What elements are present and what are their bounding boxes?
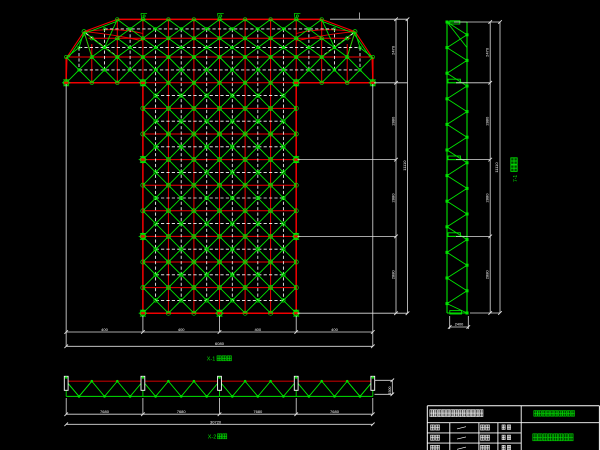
svg-text:2880: 2880 xyxy=(391,116,396,126)
svg-text:2880: 2880 xyxy=(485,270,490,280)
svg-text:400: 400 xyxy=(101,327,108,332)
svg-text:7680: 7680 xyxy=(100,409,110,414)
svg-text:X-1: X-1 xyxy=(207,357,216,363)
svg-text:400: 400 xyxy=(331,327,338,332)
svg-text:7680: 7680 xyxy=(330,409,340,414)
svg-text:400: 400 xyxy=(178,327,185,332)
svg-text:1500: 1500 xyxy=(388,387,392,395)
svg-text:11110: 11110 xyxy=(494,162,499,173)
svg-text:2880: 2880 xyxy=(485,116,490,126)
svg-text:6080: 6080 xyxy=(215,341,225,346)
svg-text:11110: 11110 xyxy=(402,160,407,171)
svg-text:X-2: X-2 xyxy=(208,435,217,441)
svg-text:2880: 2880 xyxy=(391,270,396,280)
svg-text:400: 400 xyxy=(254,327,261,332)
svg-text:2880: 2880 xyxy=(391,193,396,203)
svg-text:7-1: 7-1 xyxy=(513,175,519,182)
svg-text:2470: 2470 xyxy=(391,45,396,55)
svg-text:2470: 2470 xyxy=(485,47,490,57)
svg-text:2400: 2400 xyxy=(455,323,463,327)
svg-text:7680: 7680 xyxy=(253,409,263,414)
svg-text:2880: 2880 xyxy=(485,193,490,203)
svg-text:30720: 30720 xyxy=(210,419,222,424)
svg-text:7680: 7680 xyxy=(177,409,187,414)
